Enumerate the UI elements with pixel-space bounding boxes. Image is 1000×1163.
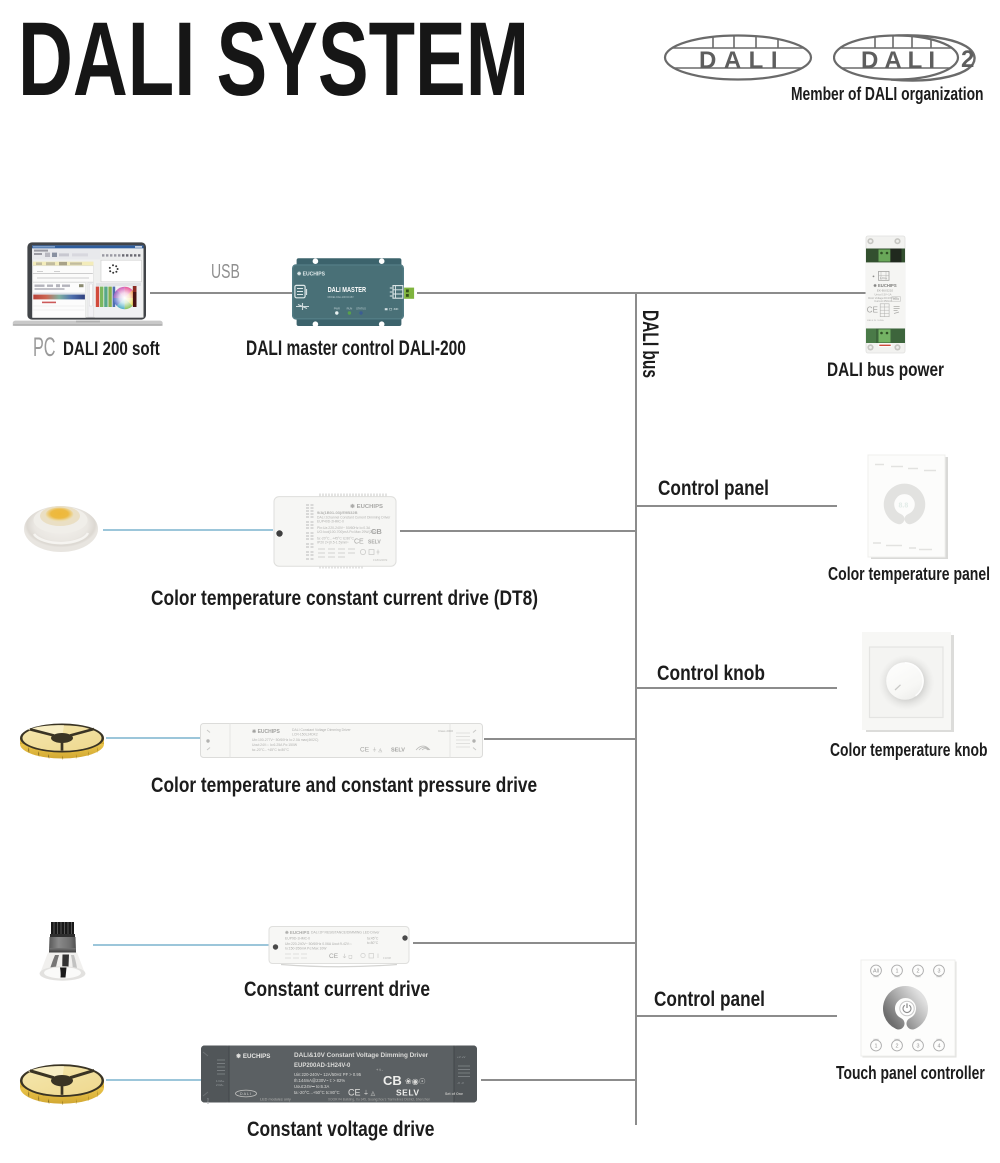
svg-text:EK-BUS210: EK-BUS210 bbox=[877, 288, 894, 292]
svg-text:MADE IN CHINA: MADE IN CHINA bbox=[867, 319, 884, 322]
svg-text:ta:45°C: ta:45°C bbox=[367, 937, 379, 941]
svg-text:DALI Constant Voltage Dimming: DALI Constant Voltage Dimming Driver bbox=[292, 728, 351, 732]
svg-text:Set of One: Set of One bbox=[445, 1092, 463, 1096]
svg-text:⏚ ◻: ⏚ ◻ bbox=[342, 953, 353, 960]
svg-text:IP20 2×(0.5-1.5)mm²: IP20 2×(0.5-1.5)mm² bbox=[317, 541, 349, 545]
svg-text:2: 2 bbox=[896, 1043, 899, 1049]
svg-text:F1808: F1808 bbox=[383, 956, 391, 960]
svg-text:3: 3 bbox=[938, 968, 941, 974]
svg-text:❋ EUCHIPS: ❋ EUCHIPS bbox=[297, 271, 325, 278]
svg-text:❋ EUCHIPS: ❋ EUCHIPS bbox=[252, 729, 280, 735]
svg-text:CE: CE bbox=[329, 953, 339, 960]
svg-text:❋ EUCHIPS: ❋ EUCHIPS bbox=[350, 503, 383, 510]
svg-text:2: 2 bbox=[961, 46, 974, 73]
svg-text:9/A(1B01-03)/E9B32B: 9/A(1B01-03)/E9B32B bbox=[317, 510, 358, 515]
svg-text:DALI MASTER: DALI MASTER bbox=[328, 287, 367, 294]
svg-text:CE: CE bbox=[354, 539, 364, 546]
svg-text:3: 3 bbox=[917, 1043, 920, 1049]
svg-text:UO:Iout(100-700)mA Po:Max 29W: UO:Iout(100-700)mA Po:Max 29W(2ch) bbox=[317, 530, 376, 534]
svg-text:CE: CE bbox=[348, 1088, 361, 1098]
svg-text:Ih:144mA@230V~ t: > 82%: Ih:144mA@230V~ t: > 82% bbox=[294, 1078, 345, 1083]
svg-text:LED modules only: LED modules only bbox=[260, 1098, 291, 1102]
svg-text:DALI: DALI bbox=[699, 47, 785, 74]
svg-text:DA16: DA16 bbox=[893, 298, 900, 301]
svg-text:1-DA+: 1-DA+ bbox=[880, 276, 888, 280]
svg-text:DALI&10V Constant Voltage Dimm: DALI&10V Constant Voltage Dimming Driver bbox=[294, 1052, 429, 1059]
svg-text:ta:-20°C...+50°C tc:80°: ta:-20°C...+50°C tc:80°C bbox=[294, 1090, 340, 1095]
svg-text:4: 4 bbox=[938, 1043, 941, 1049]
svg-text:DALI: DALI bbox=[240, 1092, 252, 1096]
svg-text:Uin:220-240V~ 12A/50Hz: Uin:220-240V~ 12A/50Hz PF > 0.95 bbox=[294, 1072, 362, 1077]
svg-text:Current:250mA: Current:250mA bbox=[874, 299, 892, 303]
svg-text:F180228/9: F180228/9 bbox=[373, 558, 388, 562]
svg-text:+V +V: +V +V bbox=[457, 1055, 465, 1059]
svg-text:+ t -: + t - bbox=[376, 1067, 384, 1072]
svg-text:❋ EUCHIPS: ❋ EUCHIPS bbox=[285, 930, 309, 935]
svg-text:DALI 2P RESISTANCE/DIMMING LED: DALI 2P RESISTANCE/DIMMING LED Driver bbox=[311, 931, 380, 935]
svg-text:Io:150-350mA Po:Max 10W: Io:150-350mA Po:Max 10W bbox=[285, 947, 327, 951]
svg-text:CB: CB bbox=[371, 527, 382, 536]
svg-text:❀◉☉: ❀◉☉ bbox=[405, 1077, 426, 1086]
svg-text:MODEL:DALI-200 DC15V: MODEL:DALI-200 DC15V bbox=[328, 295, 354, 299]
svg-text:SELV: SELV bbox=[368, 540, 381, 546]
svg-text:-V -V: -V -V bbox=[457, 1081, 464, 1085]
svg-text:1: 1 bbox=[875, 1043, 878, 1049]
svg-text:CB: CB bbox=[383, 1073, 402, 1088]
svg-text:Uin:100-277V~ 50/60Hz I: Uin:100-277V~ 50/60Hz Io:2.0A max(4t02C) bbox=[252, 738, 318, 742]
svg-text:EUP40D-2HMC-0: EUP40D-2HMC-0 bbox=[317, 520, 344, 524]
svg-text:DALI: DALI bbox=[861, 47, 941, 74]
svg-text:Uin:220-240V~ 50/60Hz 0.06A U: Uin:220-240V~ 50/60Hz 0.06A Uout:9-42V⎓ bbox=[285, 942, 352, 946]
svg-text:Class 2000: Class 2000 bbox=[438, 729, 453, 733]
svg-text:LCR-150L24DK2: LCR-150L24DK2 bbox=[292, 733, 318, 737]
svg-text:ta:-20°C...+45°C tc:80°C: ta:-20°C...+45°C tc:80°C bbox=[252, 748, 290, 752]
svg-text:RUN: RUN bbox=[347, 307, 353, 311]
svg-text:8.8: 8.8 bbox=[899, 503, 909, 510]
svg-text:CE: CE bbox=[360, 747, 370, 754]
svg-text:CE: CE bbox=[867, 305, 878, 314]
svg-text:2 DA-: 2 DA- bbox=[216, 1083, 224, 1087]
svg-text:⏚ ◬: ⏚ ◬ bbox=[372, 747, 382, 754]
svg-text:1808: 1808 bbox=[206, 1097, 210, 1104]
svg-text:SELV: SELV bbox=[391, 748, 405, 754]
svg-text:❋ EUCHIPS: ❋ EUCHIPS bbox=[236, 1053, 270, 1060]
svg-text:◼ ◻ 4C: ◼ ◻ 4C bbox=[385, 307, 400, 311]
svg-text:STATUS: STATUS bbox=[356, 307, 366, 311]
svg-text:tc:80°C: tc:80°C bbox=[367, 941, 379, 945]
svg-text:Uout:24V⎓ Io:6.3A: Uout:24V⎓ Io:6.3A bbox=[294, 1084, 329, 1089]
svg-text:Uout:24V⎓ Io:6.25A Po:150W: Uout:24V⎓ Io:6.25A Po:150W bbox=[252, 743, 298, 747]
svg-text:EUP200AD-1H24V-0: EUP200AD-1H24V-0 bbox=[294, 1063, 351, 1069]
svg-text:❋ EUCHIPS: ❋ EUCHIPS bbox=[873, 283, 896, 288]
svg-text:1: 1 bbox=[896, 968, 899, 974]
svg-text:2: 2 bbox=[917, 968, 920, 974]
svg-text:EUP9D-1HMC-0: EUP9D-1HMC-0 bbox=[285, 937, 310, 941]
svg-text:PWR: PWR bbox=[334, 307, 340, 311]
svg-text:⏚ ◬: ⏚ ◬ bbox=[363, 1090, 376, 1097]
svg-text:All: All bbox=[873, 968, 879, 974]
svg-text:XOOR #4 Building, Xu 345, Guan: XOOR #4 Building, Xu 345, Guangzhou's Ti… bbox=[328, 1098, 430, 1102]
svg-text:SELV: SELV bbox=[396, 1088, 420, 1098]
